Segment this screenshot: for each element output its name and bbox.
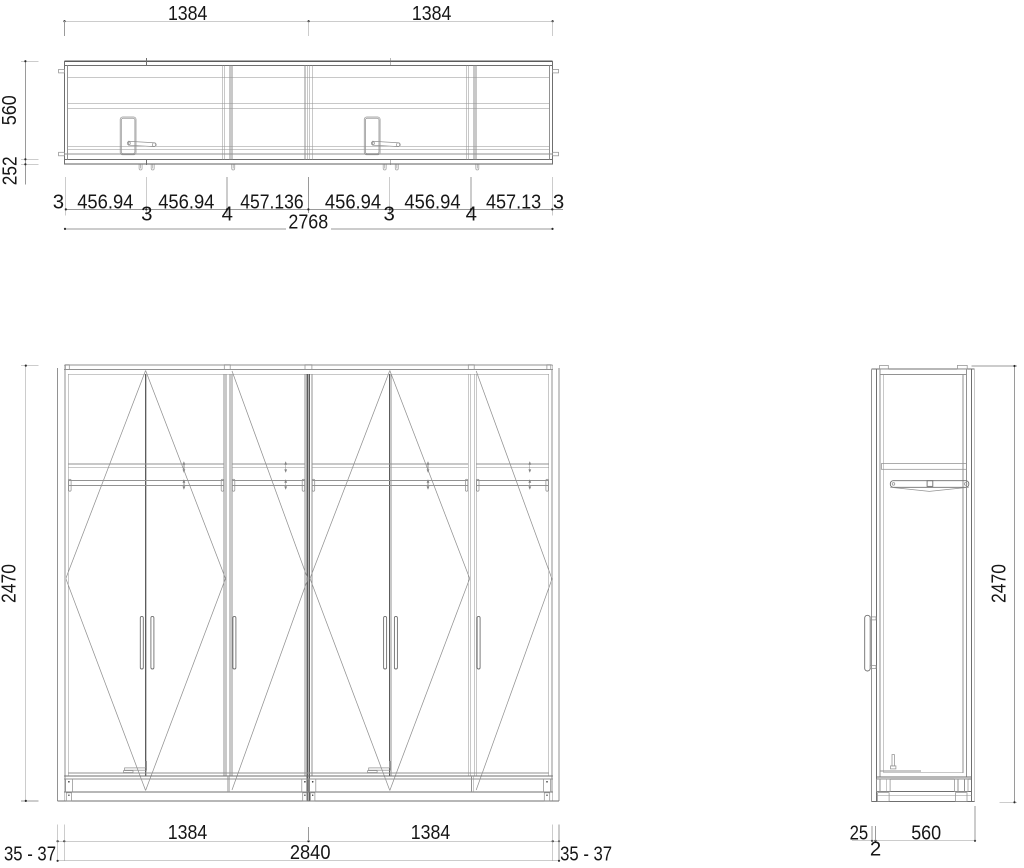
svg-text:1384: 1384	[412, 3, 452, 25]
svg-text:560: 560	[911, 822, 941, 844]
svg-text:3: 3	[141, 204, 152, 226]
svg-text:3: 3	[384, 204, 395, 226]
svg-text:35 - 37: 35 - 37	[560, 844, 612, 866]
svg-text:35 - 37: 35 - 37	[4, 844, 56, 866]
svg-text:2840: 2840	[290, 842, 331, 864]
svg-text:456.94: 456.94	[325, 192, 381, 214]
svg-text:456.94: 456.94	[404, 192, 460, 214]
svg-text:3: 3	[53, 192, 64, 214]
svg-text:1384: 1384	[168, 822, 208, 844]
svg-text:560: 560	[0, 95, 21, 125]
svg-text:1384: 1384	[168, 3, 208, 25]
svg-text:1384: 1384	[411, 822, 451, 844]
svg-text:4: 4	[222, 204, 233, 226]
svg-text:25: 25	[850, 822, 869, 844]
svg-text:2: 2	[870, 839, 881, 861]
svg-text:457.136: 457.136	[240, 192, 303, 214]
svg-text:2470: 2470	[988, 564, 1010, 603]
svg-text:457.13: 457.13	[486, 192, 541, 214]
svg-text:3: 3	[553, 192, 564, 214]
svg-text:252: 252	[0, 156, 21, 185]
svg-text:2768: 2768	[288, 211, 328, 233]
svg-text:2470: 2470	[0, 564, 21, 603]
svg-text:456.94: 456.94	[158, 192, 214, 214]
svg-text:4: 4	[466, 204, 477, 226]
svg-text:456.94: 456.94	[77, 192, 133, 214]
